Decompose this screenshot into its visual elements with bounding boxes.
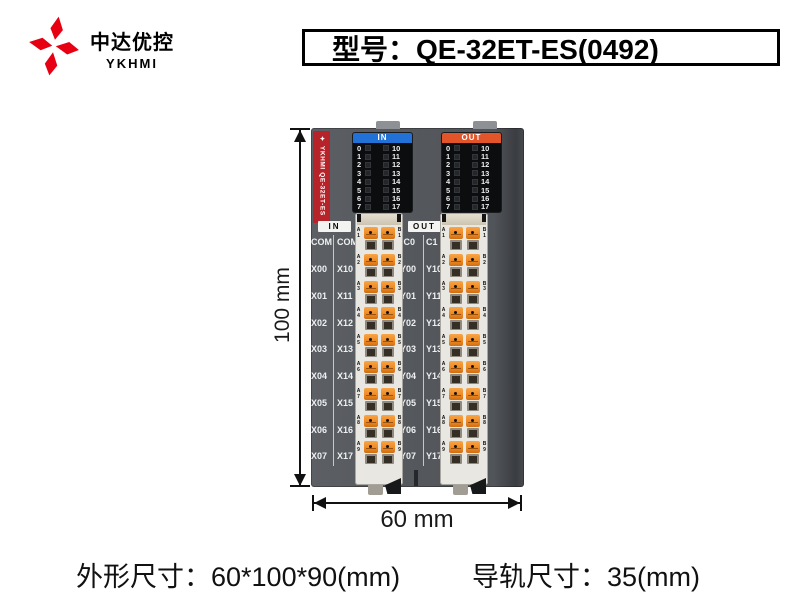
clamp-row: A6B6: [355, 359, 403, 386]
clamp-lever: [466, 334, 480, 346]
terminal-label-row: X03X13: [311, 336, 357, 363]
clamp-label-number: 3: [441, 287, 447, 293]
wire-clamp: [364, 441, 378, 466]
clamp-slot: [365, 374, 377, 384]
clamp-slot: [467, 347, 479, 357]
wire-clamp: [364, 334, 378, 359]
terminal-label: Y02: [400, 318, 420, 328]
wire-clamp: [449, 388, 463, 413]
terminal-label: X03: [311, 344, 331, 354]
led-indicator: [365, 179, 371, 185]
terminal-label: Y07: [400, 451, 420, 461]
terminal-label: Y01: [400, 291, 420, 301]
clamp-lever: [449, 415, 463, 427]
led-row: 717: [353, 203, 412, 211]
terminal-label-row: X00X10: [311, 256, 357, 283]
clamp-lever: [381, 254, 395, 266]
wire-clamp: [381, 361, 395, 386]
clamp-lever: [381, 361, 395, 373]
clamp-lever: [364, 307, 378, 319]
clamp-label: B8: [397, 415, 403, 440]
clamp-slot: [365, 454, 377, 464]
side-label-strip: ✦ YKHMI QE-32ET-ES: [313, 131, 330, 223]
clamp-label: A8: [441, 415, 447, 440]
clamp-label: A1: [356, 227, 362, 252]
led-indicator: [383, 170, 389, 176]
width-arrow-left: [314, 497, 326, 509]
clamp-label-number: 1: [397, 234, 403, 240]
terminal-label-row: X04X14: [311, 363, 357, 390]
clamp-label: B1: [397, 227, 403, 252]
wire-clamp: [364, 361, 378, 386]
clamp-label: B5: [397, 334, 403, 359]
terminal-label: X02: [311, 318, 331, 328]
clamp-label-number: 7: [397, 395, 403, 401]
clamp-slot: [467, 454, 479, 464]
page-root: 中达优控 YKHMI 型号：QE-32ET-ES(0492) ✦ YKHMI Q…: [0, 0, 800, 600]
clamp-lever: [364, 334, 378, 346]
clamp-row: A2B2: [440, 252, 488, 279]
clamp-label: A9: [356, 441, 362, 466]
io-column-divider: [333, 235, 334, 466]
led-row: 717: [442, 203, 501, 211]
led-number: 17: [481, 202, 489, 211]
clamp-slot: [365, 240, 377, 250]
clamp-lever: [449, 281, 463, 293]
clamp-label-number: 7: [356, 395, 362, 401]
side-label-text: ✦ YKHMI QE-32ET-ES: [318, 131, 326, 223]
clamp-lever: [364, 388, 378, 400]
din-clip-left: [376, 121, 400, 129]
io-label-column-left: COMCOMX00X10X01X11X02X12X03X13X04X14X05X…: [311, 229, 357, 473]
clamp-label: A9: [441, 441, 447, 466]
led-indicator: [365, 196, 371, 202]
led-indicator: [472, 187, 478, 193]
clamp-lever: [364, 281, 378, 293]
wire-clamp: [466, 307, 480, 332]
height-arrow-top: [294, 130, 306, 142]
clamp-label: B8: [482, 415, 488, 440]
clamp-label-number: 2: [482, 261, 488, 267]
terminal-label: X00: [311, 264, 331, 274]
terminal-label: Y06: [400, 425, 420, 435]
clamp-lever: [466, 307, 480, 319]
clamp-label-number: 2: [441, 261, 447, 267]
led-panel-body: 010111212313414515616717: [442, 143, 501, 211]
clamp-label: A4: [356, 307, 362, 332]
clamp-label: A6: [441, 361, 447, 386]
wire-clamp: [449, 307, 463, 332]
terminal-label: COM: [331, 237, 358, 247]
terminal-label: X15: [331, 398, 353, 408]
clamp-label-number: 1: [482, 234, 488, 240]
clamp-label-number: 8: [356, 421, 362, 427]
clamp-label: A8: [356, 415, 362, 440]
wire-clamp: [381, 254, 395, 279]
clamp-label: B3: [397, 281, 403, 306]
terminal-block-right: A1B1A2B2A3B3A4B4A5B5A6B6A7B7A8B8A9B9: [440, 213, 488, 485]
clamp-row: A5B5: [355, 332, 403, 359]
clamp-lever: [381, 307, 395, 319]
height-dimension-line: [299, 130, 301, 486]
clamp-slot: [467, 401, 479, 411]
clamp-slot: [450, 347, 462, 357]
clamp-slot: [382, 428, 394, 438]
clamp-label: B7: [482, 388, 488, 413]
clamp-label-number: 5: [482, 341, 488, 347]
clamp-slot: [467, 294, 479, 304]
led-indicator: [472, 154, 478, 160]
clamp-label-number: 5: [441, 341, 447, 347]
led-indicator: [472, 204, 478, 210]
clamp-lever: [364, 415, 378, 427]
led-indicator: [472, 162, 478, 168]
led-indicator: [383, 204, 389, 210]
clamp-label-number: 8: [397, 421, 403, 427]
clamp-lever: [466, 227, 480, 239]
clamp-label: A3: [441, 281, 447, 306]
terminal-label: X04: [311, 371, 331, 381]
clamp-label-number: 6: [441, 368, 447, 374]
led-indicator: [365, 154, 371, 160]
clamp-slot: [450, 454, 462, 464]
led-indicator: [454, 179, 460, 185]
latch-tab: [453, 485, 468, 495]
clamp-label: A2: [441, 254, 447, 279]
clamp-lever: [449, 361, 463, 373]
led-panel-title: IN: [353, 133, 412, 143]
wire-clamp: [449, 415, 463, 440]
led-indicator: [365, 170, 371, 176]
wire-clamp: [449, 254, 463, 279]
clamp-slot: [365, 401, 377, 411]
clamp-slot: [450, 320, 462, 330]
wire-clamp: [381, 334, 395, 359]
clamp-label-number: 7: [441, 395, 447, 401]
brand-text: 中达优控 YKHMI: [88, 26, 176, 71]
clamp-row: A3B3: [355, 279, 403, 306]
led-indicator: [472, 196, 478, 202]
clamp-row: A4B4: [355, 305, 403, 332]
terminal-label: Y05: [400, 398, 420, 408]
led-indicator: [454, 170, 460, 176]
terminal-wire-strip: [357, 214, 401, 225]
led-indicator: [454, 204, 460, 210]
terminal-label: Y04: [400, 371, 420, 381]
clamp-label-number: 1: [356, 234, 362, 240]
clamp-label: A4: [441, 307, 447, 332]
wire-clamp: [381, 227, 395, 252]
clamp-slot: [365, 428, 377, 438]
clamp-slot: [382, 240, 394, 250]
wire-clamp: [381, 415, 395, 440]
clamp-slot: [467, 374, 479, 384]
clamp-label: B6: [482, 361, 488, 386]
wire-clamp: [466, 227, 480, 252]
terminal-label: X11: [331, 291, 353, 301]
led-indicator: [383, 145, 389, 151]
clamp-label-number: 6: [397, 368, 403, 374]
clamp-row: A9B9: [440, 439, 488, 466]
led-number: 7: [357, 202, 365, 211]
clamp-lever: [466, 281, 480, 293]
width-dimension-line: [314, 502, 520, 504]
width-arrow-right: [508, 497, 520, 509]
led-indicator: [454, 162, 460, 168]
led-indicator: [472, 179, 478, 185]
terminal-label: X17: [331, 451, 353, 461]
clamp-row: A1B1: [355, 225, 403, 252]
io-column-divider: [423, 235, 424, 466]
clamp-slot: [382, 454, 394, 464]
height-dimension-label: 100 mm: [271, 255, 295, 355]
clamp-label-number: 7: [482, 395, 488, 401]
led-panel-body: 010111212313414515616717: [353, 143, 412, 211]
terminal-label: Y00: [400, 264, 420, 274]
height-dim-cap-bottom: [290, 485, 310, 487]
terminal-label-row: X01X11: [311, 283, 357, 310]
led-indicator: [365, 204, 371, 210]
clamp-lever: [449, 307, 463, 319]
clamp-lever: [381, 441, 395, 453]
terminal-label: X12: [331, 318, 353, 328]
terminal-label: X01: [311, 291, 331, 301]
terminal-label: X14: [331, 371, 353, 381]
clamp-label-number: 9: [397, 448, 403, 454]
clamp-label: A7: [441, 388, 447, 413]
led-indicator: [454, 196, 460, 202]
clamp-slot: [365, 320, 377, 330]
led-number: 17: [392, 202, 400, 211]
clamp-lever: [449, 227, 463, 239]
clamp-slot: [365, 294, 377, 304]
led-number: 7: [446, 202, 454, 211]
clamp-label: B4: [397, 307, 403, 332]
terminal-label: COM: [311, 237, 331, 247]
clamp-lever: [449, 388, 463, 400]
latch-tab: [368, 485, 383, 495]
clamp-row: A5B5: [440, 332, 488, 359]
wire-clamp: [364, 227, 378, 252]
model-title-box: 型号：QE-32ET-ES(0492): [302, 29, 780, 66]
clamp-slot: [382, 267, 394, 277]
led-indicator: [365, 145, 371, 151]
clamp-slot: [382, 347, 394, 357]
wire-clamp: [466, 334, 480, 359]
clamp-label-number: 8: [482, 421, 488, 427]
terminal-label: X06: [311, 425, 331, 435]
wire-clamp: [466, 254, 480, 279]
led-indicator: [454, 154, 460, 160]
led-indicator: [454, 145, 460, 151]
wire-clamp: [364, 415, 378, 440]
terminal-label-row: X06X16: [311, 416, 357, 443]
clamp-lever: [449, 254, 463, 266]
clamp-label: B6: [397, 361, 403, 386]
clamp-slot: [450, 294, 462, 304]
clamp-row: A1B1: [440, 225, 488, 252]
clamp-lever: [381, 281, 395, 293]
clamp-label: B3: [482, 281, 488, 306]
terminal-label: X16: [331, 425, 353, 435]
terminal-label-row: X07X17: [311, 443, 357, 470]
wire-clamp: [466, 441, 480, 466]
clamp-slot: [382, 320, 394, 330]
wire-clamp: [466, 415, 480, 440]
terminal-block-left: A1B1A2B2A3B3A4B4A5B5A6B6A7B7A8B8A9B9: [355, 213, 403, 485]
terminal-label: C0: [400, 237, 420, 247]
clamp-slot: [450, 428, 462, 438]
clamp-label-number: 8: [441, 421, 447, 427]
brand-name-en: YKHMI: [106, 56, 158, 71]
clamp-label: A7: [356, 388, 362, 413]
din-clip-right: [473, 121, 497, 129]
clamp-label-number: 4: [397, 314, 403, 320]
wire-clamp: [449, 227, 463, 252]
clamp-label: B2: [397, 254, 403, 279]
clamp-label: A1: [441, 227, 447, 252]
clamp-slot: [450, 401, 462, 411]
clamp-label: B7: [397, 388, 403, 413]
clamp-label: B4: [482, 307, 488, 332]
clamp-slot: [382, 401, 394, 411]
clamp-slot: [450, 240, 462, 250]
clamp-lever: [466, 441, 480, 453]
clamp-label-number: 6: [482, 368, 488, 374]
clamp-lever: [364, 254, 378, 266]
brand-name-cn: 中达优控: [90, 26, 174, 55]
wire-clamp: [364, 254, 378, 279]
clamp-label-number: 6: [356, 368, 362, 374]
clamp-label: B1: [482, 227, 488, 252]
clamp-row: A9B9: [355, 439, 403, 466]
wire-clamp: [449, 281, 463, 306]
clamp-label: A2: [356, 254, 362, 279]
clamp-slot: [467, 428, 479, 438]
clamp-label: B2: [482, 254, 488, 279]
led-panel-in: IN 010111212313414515616717: [353, 133, 412, 212]
clamp-label: A5: [441, 334, 447, 359]
led-indicator: [383, 179, 389, 185]
clamp-lever: [381, 415, 395, 427]
brand-logo-icon: [27, 14, 81, 78]
wire-clamp: [381, 281, 395, 306]
led-indicator: [383, 196, 389, 202]
led-indicator: [454, 187, 460, 193]
clamp-row: A7B7: [440, 386, 488, 413]
wire-clamp: [364, 281, 378, 306]
led-indicator: [472, 145, 478, 151]
clamp-lever: [381, 388, 395, 400]
wire-clamp: [449, 361, 463, 386]
clamp-lever: [364, 361, 378, 373]
wire-clamp: [381, 441, 395, 466]
terminal-label-row: COMCOM: [311, 229, 357, 256]
terminal-label: Y03: [400, 344, 420, 354]
clamp-label-number: 9: [356, 448, 362, 454]
clamp-lever: [466, 415, 480, 427]
clamp-slot: [467, 267, 479, 277]
clamp-row: A8B8: [355, 413, 403, 440]
clamp-lever: [449, 334, 463, 346]
led-panel-title: OUT: [442, 133, 501, 143]
clamp-label: B9: [482, 441, 488, 466]
clamp-slot: [450, 374, 462, 384]
clamp-label-number: 4: [441, 314, 447, 320]
clamp-label-number: 9: [441, 448, 447, 454]
clamp-label: B5: [482, 334, 488, 359]
wire-clamp: [364, 307, 378, 332]
clamp-lever: [466, 361, 480, 373]
wire-clamp: [364, 388, 378, 413]
clamp-label-number: 2: [397, 261, 403, 267]
terminal-label: X07: [311, 451, 331, 461]
wire-clamp: [449, 441, 463, 466]
terminal-label-row: X05X15: [311, 390, 357, 417]
clamp-label-number: 3: [482, 287, 488, 293]
clamp-lever: [381, 227, 395, 239]
clamp-label-number: 4: [356, 314, 362, 320]
clamp-slot: [382, 374, 394, 384]
footer-rail-text: 导轨尺寸：35(mm): [472, 555, 700, 594]
clamp-lever: [364, 227, 378, 239]
terminal-label: X13: [331, 344, 353, 354]
clamp-label-number: 4: [482, 314, 488, 320]
clamp-slot: [467, 240, 479, 250]
wire-clamp: [449, 334, 463, 359]
led-indicator: [365, 187, 371, 193]
clamp-label-number: 2: [356, 261, 362, 267]
clamp-label: A3: [356, 281, 362, 306]
bottom-notch: [414, 470, 418, 486]
clamp-row: A3B3: [440, 279, 488, 306]
clamp-lever: [466, 254, 480, 266]
clamp-lever: [466, 388, 480, 400]
led-indicator: [383, 162, 389, 168]
wire-clamp: [466, 281, 480, 306]
clamp-row: A2B2: [355, 252, 403, 279]
terminal-label: X10: [331, 264, 353, 274]
width-dim-cap-right: [520, 495, 522, 511]
clamp-lever: [381, 334, 395, 346]
clamp-lever: [449, 441, 463, 453]
clamp-row: A6B6: [440, 359, 488, 386]
wire-clamp: [466, 361, 480, 386]
clamp-lever: [364, 441, 378, 453]
led-indicator: [365, 162, 371, 168]
clamp-slot: [450, 267, 462, 277]
clamp-label: A5: [356, 334, 362, 359]
clamp-slot: [467, 320, 479, 330]
model-title-text: 型号：QE-32ET-ES(0492): [332, 28, 659, 68]
clamp-label: A6: [356, 361, 362, 386]
clamp-slot: [365, 347, 377, 357]
clamp-label-number: 3: [397, 287, 403, 293]
clamp-label-number: 5: [397, 341, 403, 347]
led-indicator: [472, 170, 478, 176]
width-dimension-label: 60 mm: [367, 506, 467, 534]
clamp-slot: [365, 267, 377, 277]
wire-clamp: [381, 307, 395, 332]
clamp-label-number: 3: [356, 287, 362, 293]
terminal-label-row: X02X12: [311, 309, 357, 336]
clamp-row: A4B4: [440, 305, 488, 332]
wire-clamp: [466, 388, 480, 413]
clamp-label-number: 5: [356, 341, 362, 347]
clamp-slot: [382, 294, 394, 304]
clamp-row: A7B7: [355, 386, 403, 413]
footer-size-text: 外形尺寸：60*100*90(mm): [76, 555, 400, 594]
